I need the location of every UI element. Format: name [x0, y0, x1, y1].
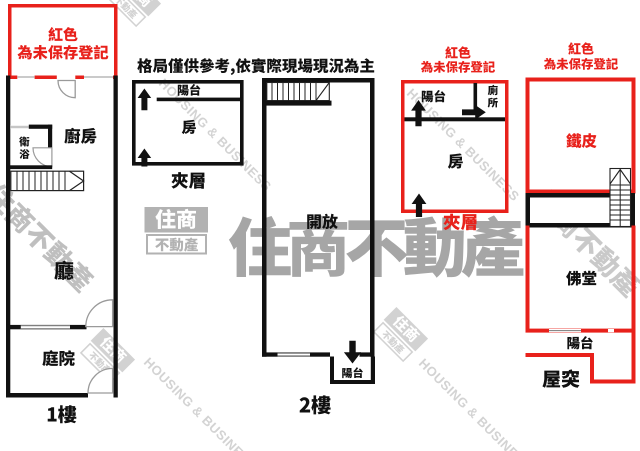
- svg-text:HOUSING & BUSINESS: HOUSING & BUSINESS: [416, 356, 535, 451]
- svg-text:HOUSING & BUSINESS: HOUSING & BUSINESS: [141, 355, 260, 451]
- svg-text:HOUSING & BUSINESS: HOUSING & BUSINESS: [404, 86, 523, 205]
